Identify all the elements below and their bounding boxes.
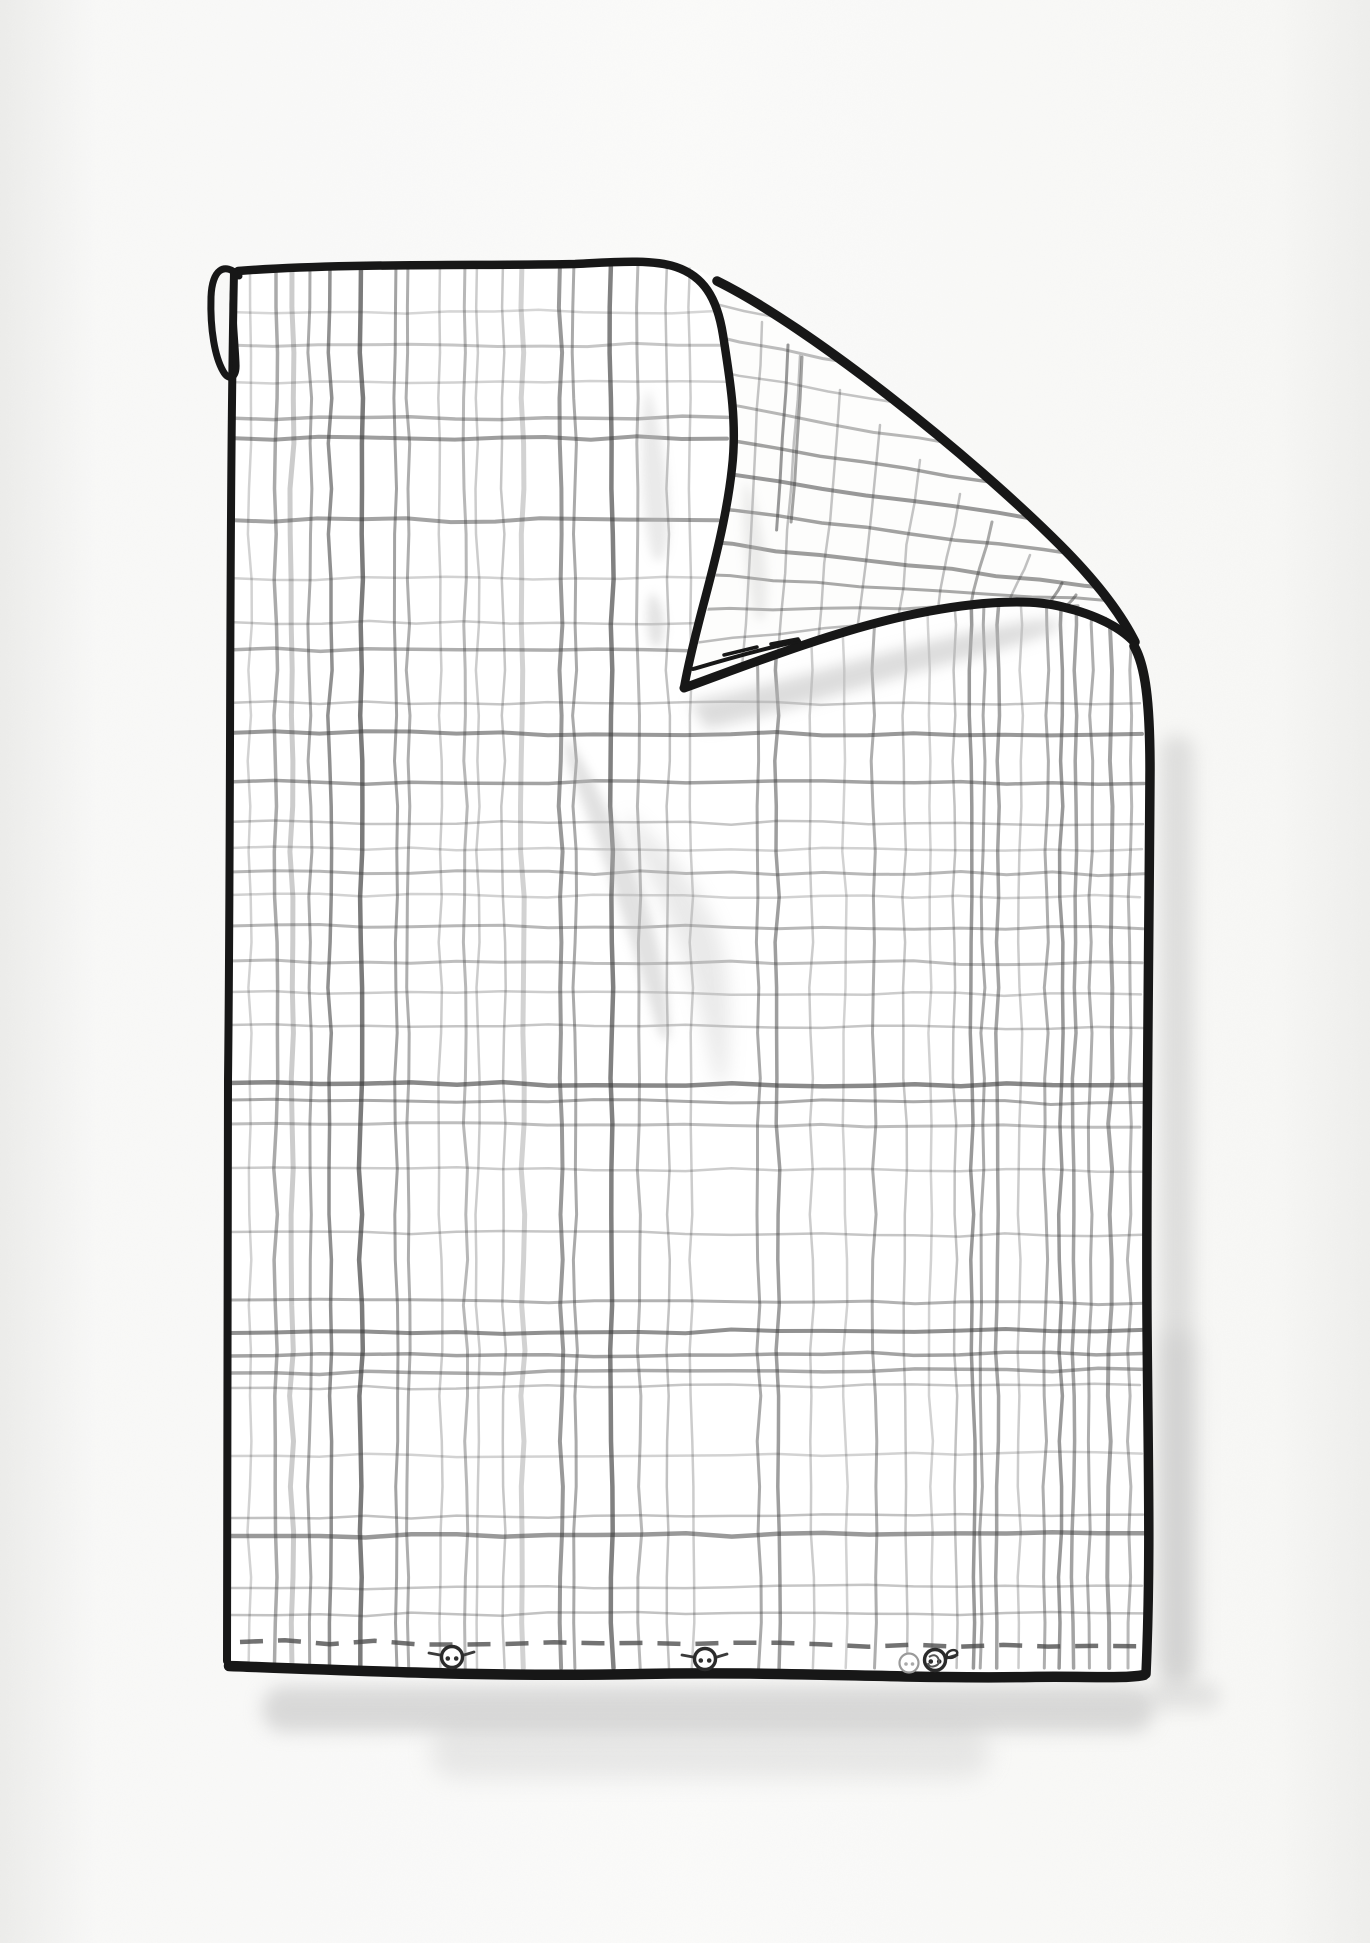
button-outline — [695, 1649, 716, 1670]
button-outline — [442, 1647, 463, 1668]
ghost-button-hole — [904, 1662, 908, 1666]
button-hole — [446, 1656, 451, 1661]
bottom-shadow-soft — [430, 1726, 990, 1778]
ghost-button-outline — [900, 1654, 919, 1673]
button-hole — [454, 1656, 459, 1661]
duvet-cover-illustration — [0, 0, 1370, 1943]
button-thread-left — [682, 1655, 693, 1657]
ghost-button-hole — [911, 1662, 915, 1666]
button-hole — [699, 1658, 704, 1663]
button-hole — [707, 1658, 712, 1663]
ghost-button — [900, 1654, 919, 1673]
bottom-shadow — [262, 1686, 1154, 1732]
button-outline — [925, 1650, 946, 1671]
bottom-right-shadow — [1148, 1682, 1220, 1710]
right-side-shadow-lower — [1157, 1330, 1197, 1682]
button-thread-left — [429, 1653, 440, 1655]
plaid-horizontal-line — [228, 648, 690, 651]
illustration-stage — [0, 0, 1370, 1943]
button-hole — [929, 1659, 934, 1664]
